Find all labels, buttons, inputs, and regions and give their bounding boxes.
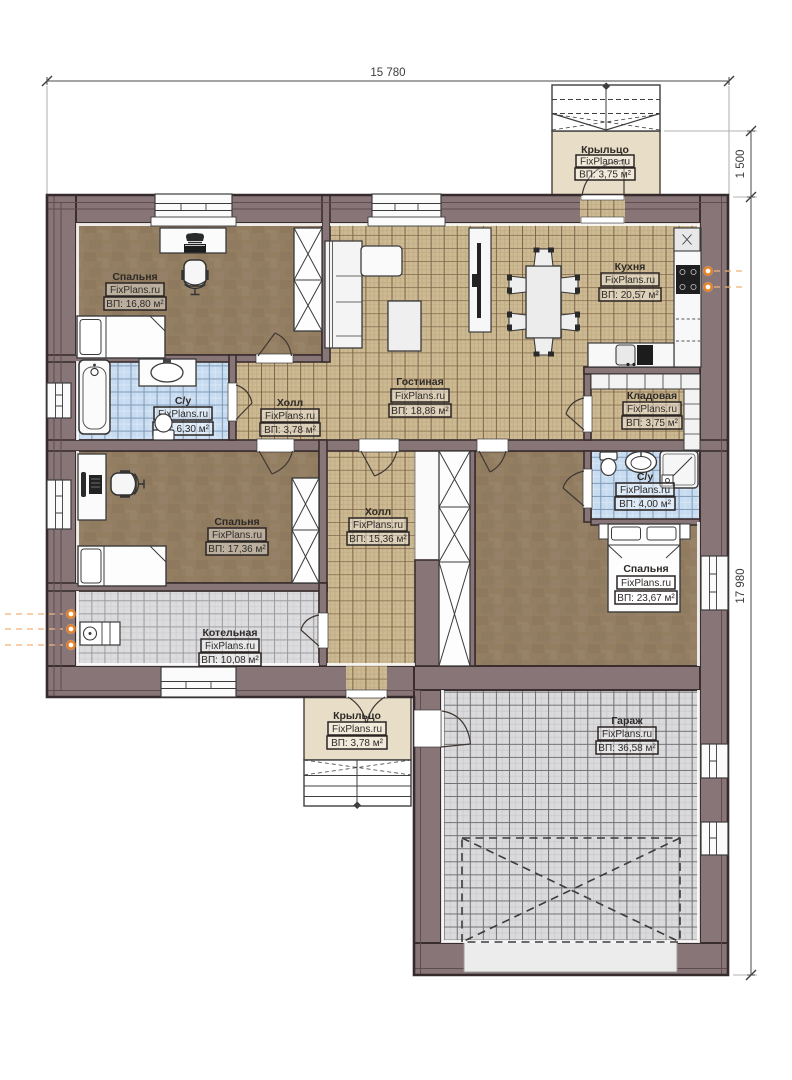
svg-text:FixPlans.ru: FixPlans.ru <box>110 285 160 296</box>
svg-text:FixPlans.ru: FixPlans.ru <box>602 729 652 740</box>
svg-text:ВП: 15,36 м²: ВП: 15,36 м² <box>349 534 407 545</box>
svg-text:FixPlans.ru: FixPlans.ru <box>353 520 403 531</box>
svg-text:Кладовая: Кладовая <box>627 390 677 402</box>
svg-text:Спальня: Спальня <box>214 516 259 528</box>
svg-text:FixPlans.ru: FixPlans.ru <box>205 641 255 652</box>
svg-text:FixPlans.ru: FixPlans.ru <box>620 485 670 496</box>
svg-text:Кухня: Кухня <box>615 261 646 273</box>
svg-text:FixPlans.ru: FixPlans.ru <box>395 391 445 402</box>
svg-text:Спальня: Спальня <box>112 271 157 283</box>
svg-text:FixPlans.ru: FixPlans.ru <box>605 275 655 286</box>
svg-text:FixPlans.ru: FixPlans.ru <box>627 404 677 415</box>
svg-text:ВП: 23,67 м²: ВП: 23,67 м² <box>617 593 675 604</box>
svg-text:ВП: 3,75 м²: ВП: 3,75 м² <box>579 170 632 181</box>
svg-text:ВП: 3,78 м²: ВП: 3,78 м² <box>331 738 384 749</box>
svg-text:ВП: 3,78 м²: ВП: 3,78 м² <box>264 425 317 436</box>
svg-text:15 780: 15 780 <box>370 67 405 79</box>
svg-text:ВП: 17,36 м²: ВП: 17,36 м² <box>208 544 266 555</box>
svg-text:FixPlans.ru: FixPlans.ru <box>265 411 315 422</box>
svg-text:Гараж: Гараж <box>611 715 643 727</box>
svg-text:Крыльцо: Крыльцо <box>581 144 629 156</box>
svg-text:ВП: 10,08 м²: ВП: 10,08 м² <box>201 655 259 666</box>
svg-text:FixPlans.ru: FixPlans.ru <box>332 724 382 735</box>
svg-text:ВП: 36,58 м²: ВП: 36,58 м² <box>598 743 656 754</box>
svg-text:Крыльцо: Крыльцо <box>333 710 381 722</box>
svg-text:FixPlans.ru: FixPlans.ru <box>212 530 262 541</box>
svg-text:17 980: 17 980 <box>735 568 747 603</box>
svg-text:Котельная: Котельная <box>203 627 258 639</box>
svg-text:FixPlans.ru: FixPlans.ru <box>580 157 630 168</box>
svg-text:ВП: 18,86 м²: ВП: 18,86 м² <box>391 406 449 417</box>
svg-text:ВП: 3,75 м²: ВП: 3,75 м² <box>626 418 679 429</box>
svg-text:ВП: 4,00 м²: ВП: 4,00 м² <box>619 499 672 510</box>
svg-text:Гостиная: Гостиная <box>396 376 443 388</box>
svg-text:ВП: 20,57 м²: ВП: 20,57 м² <box>601 290 659 301</box>
svg-text:Холл: Холл <box>365 506 391 518</box>
svg-text:ВП: 16,80 м²: ВП: 16,80 м² <box>106 299 164 310</box>
svg-text:1 500: 1 500 <box>735 150 747 179</box>
svg-text:Спальня: Спальня <box>623 563 668 575</box>
svg-text:FixPlans.ru: FixPlans.ru <box>621 578 671 589</box>
svg-text:Холл: Холл <box>277 397 303 409</box>
svg-text:С/у: С/у <box>175 395 192 407</box>
svg-text:С/у: С/у <box>637 471 654 483</box>
